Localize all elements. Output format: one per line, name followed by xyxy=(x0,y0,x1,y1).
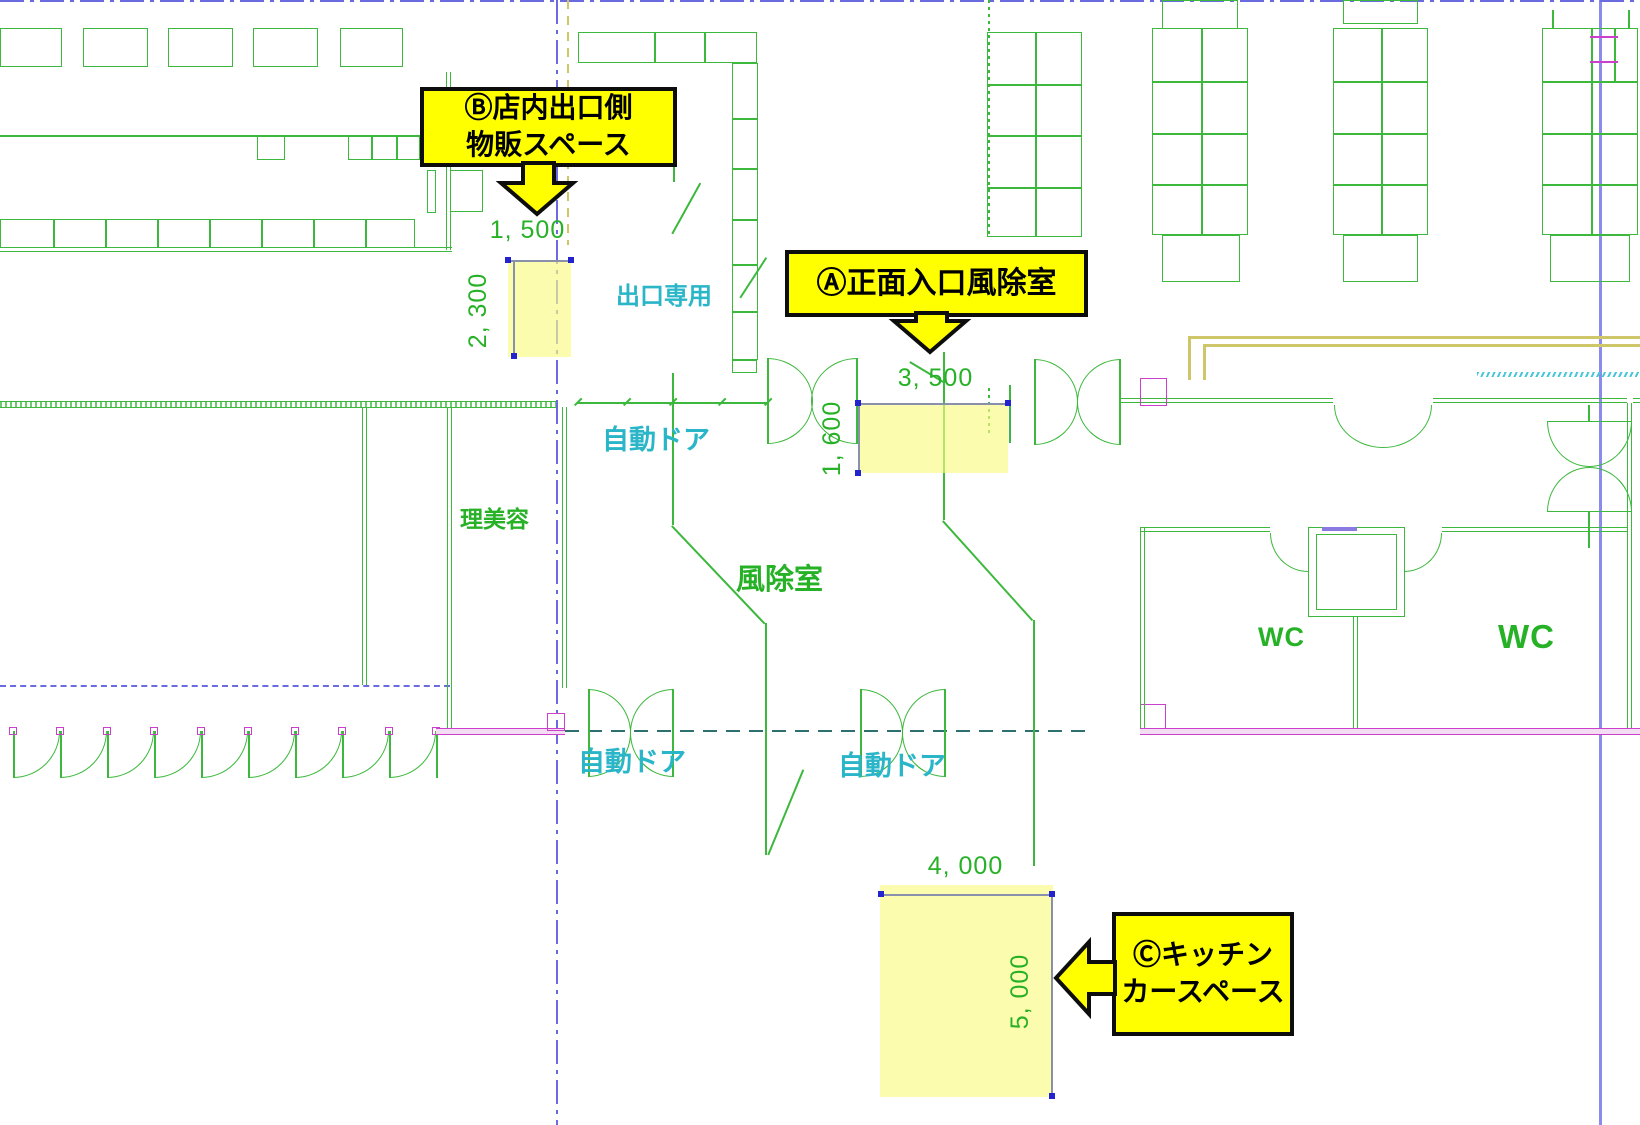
fixture xyxy=(372,135,397,160)
door-swing xyxy=(342,731,389,778)
divider xyxy=(105,220,107,247)
divider xyxy=(1201,29,1203,234)
divider xyxy=(733,168,757,170)
divider xyxy=(53,220,55,247)
wall-double xyxy=(1433,398,1627,403)
floor-plan-canvas: 1, 500 2, 300 3, 500 1, 600 4, 000 5, 00… xyxy=(0,0,1640,1125)
divider xyxy=(1543,81,1637,83)
door-swing xyxy=(154,731,201,778)
dim-line xyxy=(506,260,572,262)
table xyxy=(340,28,403,67)
callout-c-line2: カースペース xyxy=(1116,974,1290,1011)
magenta-mark xyxy=(1590,36,1618,38)
table-group xyxy=(1152,28,1248,235)
dim-dot xyxy=(1049,1093,1055,1099)
shelf-band-vertical xyxy=(732,63,758,360)
dim-dot xyxy=(855,470,861,476)
table-group xyxy=(987,32,1082,237)
table-group xyxy=(1542,28,1638,235)
wall-double xyxy=(1633,398,1640,403)
divider xyxy=(733,118,757,120)
label-auto-door-bottom-left: 自動ドア xyxy=(578,740,686,779)
dim-line xyxy=(858,403,1008,405)
highlight-a-area xyxy=(858,403,1008,473)
dim-b-height: 2, 300 xyxy=(464,253,493,368)
column xyxy=(547,713,565,731)
label-auto-door-top: 自動ドア xyxy=(602,418,710,457)
dim-dot xyxy=(855,400,861,406)
wall-stub xyxy=(1009,385,1011,443)
fixture xyxy=(257,135,285,160)
callout-a: Ⓐ正面入口風除室 xyxy=(785,250,1088,317)
fixture xyxy=(397,135,420,160)
divider xyxy=(733,311,757,313)
fixture xyxy=(450,170,483,212)
dim-a-height: 1, 600 xyxy=(818,381,847,496)
divider xyxy=(1334,81,1427,83)
door-half-circle xyxy=(1547,467,1632,512)
dim-a-width: 3, 500 xyxy=(878,364,993,393)
highlight-b-area xyxy=(508,261,571,357)
windbreak-partition-diag xyxy=(942,520,1033,621)
dim-b-width: 1, 500 xyxy=(470,216,585,245)
hinge-marker xyxy=(291,727,299,735)
divider xyxy=(704,33,706,62)
callout-c-line1: Ⓒキッチン xyxy=(1116,937,1290,974)
table xyxy=(0,28,62,67)
table xyxy=(83,28,148,67)
hinge-marker xyxy=(338,727,346,735)
dim-dot xyxy=(505,257,511,263)
door-leaf-arc xyxy=(1077,359,1121,445)
dim-dot xyxy=(1005,400,1011,406)
table-cap xyxy=(1343,235,1418,282)
exit-door-slash xyxy=(671,183,700,234)
door-swing xyxy=(389,731,436,778)
label-wc-right: WC xyxy=(1498,618,1555,656)
door-stem xyxy=(1588,405,1590,422)
table xyxy=(253,28,318,67)
dim-c-height: 5, 000 xyxy=(1006,934,1035,1049)
canopy-line xyxy=(1188,336,1191,380)
dim-dot xyxy=(568,257,574,263)
divider xyxy=(209,220,211,247)
divider xyxy=(1543,184,1637,186)
door-jamb xyxy=(1119,359,1121,445)
divider xyxy=(1153,184,1247,186)
swing-door-arc xyxy=(1334,405,1383,448)
divider xyxy=(988,187,1081,189)
divider xyxy=(1153,81,1247,83)
door-slash xyxy=(767,769,803,855)
wall-double xyxy=(562,407,567,688)
shelf-band-horizontal xyxy=(578,32,757,63)
divider xyxy=(1543,133,1637,135)
table-group xyxy=(1333,28,1428,235)
hinge-marker xyxy=(150,727,158,735)
divider xyxy=(313,220,315,247)
dim-c-width: 4, 000 xyxy=(908,852,1023,881)
divider xyxy=(1334,184,1427,186)
divider xyxy=(1381,29,1383,234)
divider xyxy=(988,84,1081,86)
zigzag-line xyxy=(1477,372,1640,377)
shelf-end xyxy=(732,360,757,373)
windbreak-partition xyxy=(765,623,767,855)
door-leaf-arc xyxy=(1034,359,1078,445)
hinge-marker xyxy=(9,727,17,735)
hinge-marker xyxy=(244,727,252,735)
divider xyxy=(1153,133,1247,135)
wall-magenta xyxy=(436,728,565,735)
canopy-line xyxy=(1203,344,1206,380)
callout-b-line1: Ⓑ店内出口側 xyxy=(424,90,673,127)
table-cap xyxy=(1343,0,1418,24)
canopy-line xyxy=(1188,336,1640,339)
wc-door-arc xyxy=(1404,533,1442,572)
canopy-line xyxy=(1203,344,1640,347)
callout-c-arrow-left-icon xyxy=(1053,938,1115,1018)
fixture xyxy=(427,170,436,213)
door-half-circle xyxy=(1547,421,1632,467)
label-barber: 理美容 xyxy=(460,500,529,534)
shaft-inner xyxy=(1316,534,1397,610)
dashed-room-line xyxy=(0,685,450,687)
label-windbreak: 風除室 xyxy=(736,556,823,598)
wall-double xyxy=(1627,403,1632,728)
door-swing xyxy=(60,731,107,778)
table-cap xyxy=(1162,0,1238,29)
shaft-violet-seg xyxy=(1322,527,1357,531)
callout-a-label: Ⓐ正面入口風除室 xyxy=(789,264,1084,304)
dim-dot xyxy=(878,891,884,897)
divider xyxy=(733,264,757,266)
swing-door-arc xyxy=(1383,405,1432,448)
callout-b: Ⓑ店内出口側 物販スペース xyxy=(420,87,677,167)
wall-double xyxy=(447,407,452,731)
divider xyxy=(733,219,757,221)
table xyxy=(168,28,233,67)
divider xyxy=(654,33,656,62)
hinge-marker xyxy=(197,727,205,735)
dim-line xyxy=(858,404,860,473)
label-exit-only: 出口専用 xyxy=(616,276,712,311)
wall-double xyxy=(1353,617,1358,728)
divider xyxy=(157,220,159,247)
divider xyxy=(365,220,367,247)
label-auto-door-bottom-right: 自動ドア xyxy=(838,744,946,783)
dim-line xyxy=(881,894,1053,896)
door-jamb xyxy=(436,731,438,778)
windbreak-partition xyxy=(1033,620,1035,866)
column xyxy=(1140,378,1167,406)
door-swing xyxy=(248,731,295,778)
dim-line xyxy=(513,261,515,357)
wall-double xyxy=(1140,527,1270,532)
cap-line xyxy=(1628,10,1630,28)
callout-c: Ⓒキッチン カースペース xyxy=(1112,912,1294,1036)
magenta-mark xyxy=(1590,61,1618,63)
wall-double xyxy=(362,407,367,685)
dim-dot xyxy=(511,353,517,359)
cap-line xyxy=(1552,10,1554,28)
door-swing xyxy=(295,731,342,778)
fixture xyxy=(348,135,372,160)
table-cap xyxy=(1162,235,1240,282)
wall-double xyxy=(1140,527,1145,728)
divider xyxy=(988,135,1081,137)
shelf-row xyxy=(0,219,415,248)
wall-magenta xyxy=(1140,728,1640,735)
wall-double xyxy=(0,247,452,252)
label-wc-left: WC xyxy=(1258,622,1305,653)
wc-door-arc xyxy=(1270,533,1308,572)
hinge-marker xyxy=(103,727,111,735)
wall-double xyxy=(1442,527,1627,532)
hinge-marker xyxy=(56,727,64,735)
table-cap xyxy=(1550,235,1630,282)
door-swing xyxy=(13,731,60,778)
door-swing xyxy=(201,731,248,778)
divider xyxy=(1591,29,1593,234)
wall-hatched xyxy=(0,401,556,408)
callout-b-line2: 物販スペース xyxy=(424,127,673,164)
divider xyxy=(1334,133,1427,135)
callout-a-arrow-down-icon xyxy=(890,313,970,355)
dim-dot xyxy=(1049,891,1055,897)
door-swing xyxy=(107,731,154,778)
door-leaf-arc xyxy=(767,358,813,444)
hinge-marker xyxy=(385,727,393,735)
divider xyxy=(261,220,263,247)
callout-b-arrow-down-icon xyxy=(497,163,577,217)
